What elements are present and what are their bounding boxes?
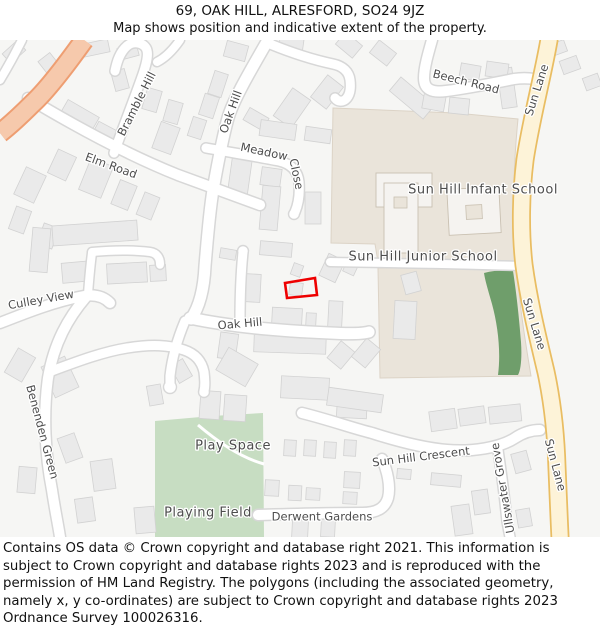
- building: [284, 440, 297, 457]
- copyright-notice: Contains OS data © Crown copyright and d…: [0, 537, 600, 625]
- building: [306, 488, 321, 501]
- building: [324, 442, 337, 459]
- building: [288, 485, 302, 501]
- building: [393, 300, 417, 339]
- building: [451, 504, 473, 536]
- map-container[interactable]: Bramble Hill Oak Hill Elm Road Meadow Cl…: [0, 40, 600, 537]
- building: [223, 394, 247, 421]
- building: [471, 489, 490, 515]
- header: 69, OAK HILL, ALRESFORD, SO24 9JZ Map sh…: [0, 0, 600, 40]
- label-playing-field: Playing Field: [164, 506, 252, 521]
- building: [431, 473, 462, 488]
- building: [90, 459, 116, 492]
- map-canvas[interactable]: Bramble Hill Oak Hill Elm Road Meadow Cl…: [0, 40, 600, 537]
- building: [260, 167, 282, 188]
- label-junior-school: Sun Hill Junior School: [348, 250, 497, 265]
- building: [29, 227, 51, 272]
- building: [458, 406, 486, 426]
- building: [305, 192, 321, 224]
- building: [343, 492, 358, 505]
- building: [265, 480, 280, 497]
- building: [280, 376, 329, 400]
- building: [289, 282, 304, 297]
- page-title: 69, OAK HILL, ALRESFORD, SO24 9JZ: [0, 0, 600, 19]
- building: [448, 97, 470, 115]
- building: [17, 466, 37, 493]
- building: [74, 497, 95, 523]
- label-infant-school: Sun Hill Infant School: [408, 183, 558, 198]
- page-subtitle: Map shows position and indicative extent…: [0, 19, 600, 36]
- building: [146, 384, 163, 406]
- building: [304, 440, 317, 457]
- building: [259, 241, 292, 258]
- building: [516, 508, 533, 528]
- building: [107, 262, 148, 284]
- label-derwent-gardens: Derwent Gardens: [272, 510, 373, 524]
- building: [344, 440, 357, 457]
- building: [397, 468, 412, 479]
- building: [344, 472, 361, 489]
- label-play-space: Play Space: [195, 439, 271, 454]
- building: [134, 506, 156, 534]
- building: [429, 408, 458, 431]
- building: [488, 404, 522, 424]
